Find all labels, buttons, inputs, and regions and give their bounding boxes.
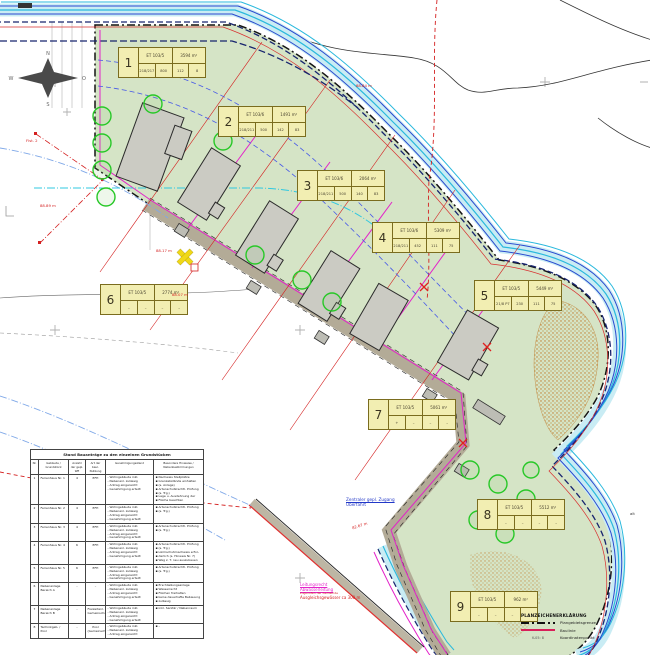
plot-parcel: ET 103/5: [121, 285, 155, 300]
legend-item-baulinie: Baulinie: [521, 628, 647, 633]
legend-label-coordinate: Koordinatenpunkt: [560, 635, 595, 640]
plot-parcel: ET 103/5: [389, 400, 423, 415]
plot-detail-cell: 83: [289, 123, 305, 136]
cell-nr: 3: [31, 523, 39, 542]
svg-text:W: W: [9, 76, 14, 82]
plot-detail-cell: –: [548, 516, 564, 529]
cell-name: Ferienhaus Nr. 3: [39, 523, 69, 542]
plot-detail-cell: –: [423, 416, 440, 429]
dim-text-4: 88.07 m: [172, 293, 188, 297]
cell-units: –: [69, 583, 86, 605]
plot-parcel: ET 103/5: [495, 281, 529, 296]
plot-detail-cell: 142: [273, 123, 290, 136]
cell-name: Ferienhaus Nr. 4: [39, 542, 69, 564]
boundary-line-sample: [521, 622, 555, 624]
plot-detail-cell: –: [121, 301, 138, 314]
cell-name: Ferienhaus Nr. 1: [39, 475, 69, 505]
cell-name: Nebenanlage Bereich A: [39, 583, 69, 605]
site-plan-canvas: N O S W 1ET 103/53594 m²218/21780011282E…: [0, 0, 650, 655]
plot-parcel: ET 103/6: [393, 223, 427, 238]
plot-detail-cell: +: [389, 416, 406, 429]
plot-detail-cell: –: [471, 608, 488, 621]
dim-text-3: 88.17 m: [156, 249, 172, 253]
plot-parcel: ET 103/6: [239, 107, 273, 122]
plot-label-4: 4ET 103/65309 m²218/21145211175: [372, 222, 460, 253]
cell-nr: 6: [31, 583, 39, 605]
hazard-marker: [172, 244, 198, 271]
table-row: 3Ferienhaus Nr. 34EFH- Wohngebäude inkl.…: [31, 523, 204, 542]
table-row: 2Ferienhaus Nr. 24EFH- Wohngebäude inkl.…: [31, 505, 204, 524]
cell-status: - Wohngebäude inkl.- Nebenanl. zulässig-…: [106, 624, 154, 639]
compass-rose: N O S W: [9, 51, 87, 108]
plot-area: 962 m²: [505, 592, 538, 607]
cell-use: –: [86, 583, 106, 605]
dim-text-1: 88.84 m: [356, 84, 372, 88]
plot-detail-cell: 218/211: [318, 187, 335, 200]
cell-notes: ▪ Erschließungsanlage▪ Wasserrecht▪ Fläc…: [154, 583, 204, 605]
cell-notes: ▪ Nachweis Stellplätze▪ Grenzabstände ei…: [154, 475, 204, 505]
table-row: 7Nebenanlage Bereich B–Freizeitanl. Geme…: [31, 605, 204, 624]
plot-label-7: 7ET 103/55061 m²+–––: [368, 399, 456, 430]
cell-use: EFH: [86, 475, 106, 505]
plot-number: 5: [475, 281, 495, 310]
plot-area: 5449 m²: [529, 281, 562, 296]
cell-status: - Wohngebäude inkl.- Nebenanl. zulässig-…: [106, 475, 154, 505]
plot-detail-cell: 230: [512, 297, 529, 310]
plot-parcel: ET 103/5: [471, 592, 505, 607]
col-header-units: Anzahl der gepl. WE: [69, 460, 86, 475]
plot-area: 5061 m²: [423, 400, 456, 415]
dim-text-2: 88.89 m: [40, 204, 56, 208]
plot-parcel: ET 103/6: [318, 171, 352, 186]
table-row: 5Ferienhaus Nr. 56EFH- Wohngebäude inkl.…: [31, 564, 204, 583]
cell-units: 4: [69, 475, 86, 505]
cell-status: - Wohngebäude inkl.- Nebenanl. zulässig-…: [106, 564, 154, 583]
legend-label-baulinie: Baulinie: [560, 628, 576, 633]
svg-text:N: N: [46, 51, 50, 57]
cell-use: EFH: [86, 523, 106, 542]
col-header-status: Genehmigungsstand: [106, 460, 154, 475]
plot-area: 3594 m²: [173, 48, 206, 63]
cell-use: EFH: [86, 542, 106, 564]
cell-use: EFH: [86, 505, 106, 524]
plot-number: 7: [369, 400, 389, 429]
table-title: Stand Bauanträge zu den einzelnen Grunds…: [31, 450, 204, 460]
plot-detail-cell: –: [498, 516, 515, 529]
cell-units: 6: [69, 542, 86, 564]
cell-name: Nebenanlage Bereich B: [39, 605, 69, 624]
plot-detail-cell: 800: [156, 64, 173, 77]
plot-detail-cell: 111: [529, 297, 546, 310]
cell-units: 4: [69, 505, 86, 524]
legend-item-boundary: Plangebietsgrenze: [521, 620, 647, 625]
cell-use: Pool (Gemeinschaft): [86, 624, 106, 639]
plot-area: 1491 m²: [273, 107, 306, 122]
misc-marks: [6, 3, 32, 216]
cell-notes: ▪ Artenschutzrechtl. Prüfung▪ (s. Trg.): [154, 564, 204, 583]
plot-number: 6: [101, 285, 121, 314]
plot-number: 3: [298, 171, 318, 200]
building-status-table: Stand Bauanträge zu den einzelnen Grunds…: [30, 449, 204, 639]
plot-area: 5309 m²: [427, 223, 460, 238]
utility-line4: Ausgleichsgewässer ca 300 m: [300, 596, 360, 601]
col-header-nr: Nr.: [31, 460, 39, 475]
table-row: 4Ferienhaus Nr. 46EFH- Wohngebäude inkl.…: [31, 542, 204, 564]
plot-label-8: 8ET 103/55512 m²––––: [477, 499, 565, 530]
col-header-building: Gebäude / Grundstück: [39, 460, 69, 475]
plot-detail-cell: –: [138, 301, 155, 314]
plot-detail-cell: 21/8 P7: [495, 297, 512, 310]
map-legend: PLANZEICHENERKLÄRUNG Plangebietsgrenze B…: [521, 613, 647, 643]
plot-number: 9: [451, 592, 471, 621]
plot-area: 5512 m²: [532, 500, 565, 515]
plot-detail-cell: 111: [427, 239, 444, 252]
legend-item-coordinate: K-05: 8 Koordinatenpunkt: [521, 635, 647, 640]
alt-label: alt: [630, 512, 635, 516]
cell-nr: 7: [31, 605, 39, 624]
plot-detail-cell: 8: [189, 64, 205, 77]
access-annotation-line2: Überfahrt: [346, 503, 395, 508]
plot-detail-cell: 75: [443, 239, 459, 252]
cell-nr: 8: [31, 624, 39, 639]
plot-detail-cell: –: [439, 416, 455, 429]
plot-detail-cell: 218/217: [139, 64, 156, 77]
plot-area: 2064 m²: [352, 171, 385, 186]
plot-label-1: 1ET 103/53594 m²218/2178001128: [118, 47, 206, 78]
plot-detail-cell: –: [515, 516, 532, 529]
cell-notes: ▪ inkl. Sanitär / Nebenraum: [154, 605, 204, 624]
cell-units: –: [69, 624, 86, 639]
plot-number: 1: [119, 48, 139, 77]
cell-name: Ferienhaus Nr. 5: [39, 564, 69, 583]
col-header-use: Art der baul. Nutzung: [86, 460, 106, 475]
plot-parcel: ET 103/5: [498, 500, 532, 515]
table-row: 8Technikgeb. / Pool–Pool (Gemeinschaft)-…: [31, 624, 204, 639]
plot-detail-cell: 218/211: [239, 123, 256, 136]
cell-notes: ▪ Artenschutzrechtl. Prüfung▪ (s. Trg.)▪…: [154, 542, 204, 564]
cell-units: 6: [69, 564, 86, 583]
plot-detail-cell: –: [505, 608, 522, 621]
cell-status: - Wohngebäude inkl.- Nebenanl. zulässig-…: [106, 542, 154, 564]
cell-nr: 4: [31, 542, 39, 564]
plot-detail-cell: 452: [410, 239, 427, 252]
cell-notes: ▪ –: [154, 624, 204, 639]
plot-detail-cell: 83: [368, 187, 384, 200]
plot-detail-cell: 75: [545, 297, 561, 310]
cell-notes: ▪ Artenschutzrechtl. Prüfung▪ (s. Trg.): [154, 523, 204, 542]
cell-use: Freizeitanl. Gemeinschaftshaus: [86, 605, 106, 624]
table-row: 6Nebenanlage Bereich A––- Wohngebäude in…: [31, 583, 204, 605]
table-row: 1Ferienhaus Nr. 14EFH- Wohngebäude inkl.…: [31, 475, 204, 505]
cell-name: Technikgeb. / Pool: [39, 624, 69, 639]
parcel-text: Flst. 2: [26, 139, 38, 143]
plot-detail-cell: 140: [352, 187, 369, 200]
plot-label-5: 5ET 103/55449 m²21/8 P723011175: [474, 280, 562, 311]
baulinie-line-sample: [521, 629, 555, 631]
legend-label-boundary: Plangebietsgrenze: [560, 620, 596, 625]
cell-status: - Wohngebäude inkl.- Nebenanl. zulässig-…: [106, 605, 154, 624]
cell-name: Ferienhaus Nr. 2: [39, 505, 69, 524]
plot-detail-cell: 112: [173, 64, 190, 77]
plot-number: 2: [219, 107, 239, 136]
legend-title: PLANZEICHENERKLÄRUNG: [521, 613, 647, 618]
plot-parcel: ET 103/5: [139, 48, 173, 63]
plot-number: 4: [373, 223, 393, 252]
cell-status: - Wohngebäude inkl.- Nebenanl. zulässig-…: [106, 583, 154, 605]
plot-detail-cell: –: [171, 301, 187, 314]
cell-nr: 2: [31, 505, 39, 524]
plot-label-3: 3ET 103/62064 m²218/21150014083: [297, 170, 385, 201]
plot-label-6: 6ET 103/52774 m²––––: [100, 284, 188, 315]
plot-detail-cell: 500: [256, 123, 273, 136]
coordinate-sample: K-05: 8: [532, 636, 544, 640]
cell-nr: 1: [31, 475, 39, 505]
plot-detail-cell: –: [406, 416, 423, 429]
plot-number: 8: [478, 500, 498, 529]
svg-text:O: O: [82, 76, 86, 82]
cell-nr: 5: [31, 564, 39, 583]
plot-detail-cell: 500: [335, 187, 352, 200]
cell-use: EFH: [86, 564, 106, 583]
utility-annotation: Leitungsrecht Abwasserleitung zugunsten …: [300, 583, 360, 600]
svg-text:S: S: [46, 102, 49, 108]
cell-status: - Wohngebäude inkl.- Nebenanl. zulässig-…: [106, 505, 154, 524]
plot-detail-cell: –: [532, 516, 549, 529]
cell-units: 4: [69, 523, 86, 542]
cell-notes: ▪ Artenschutzrechtl. Prüfung▪ (s. Trg.): [154, 505, 204, 524]
plot-detail-cell: 218/211: [393, 239, 410, 252]
table-header-row: Nr. Gebäude / Grundstück Anzahl der gepl…: [31, 460, 204, 475]
access-annotation: Zentraler gepl. Zugang Überfahrt: [346, 498, 395, 508]
cell-units: –: [69, 605, 86, 624]
col-header-notes: Besondere Hinweise / Nebenbestimmungen: [154, 460, 204, 475]
plot-detail-cell: –: [488, 608, 505, 621]
plot-detail-cell: –: [155, 301, 172, 314]
plot-label-2: 2ET 103/61491 m²218/21150014283: [218, 106, 306, 137]
cell-status: - Wohngebäude inkl.- Nebenanl. zulässig-…: [106, 523, 154, 542]
